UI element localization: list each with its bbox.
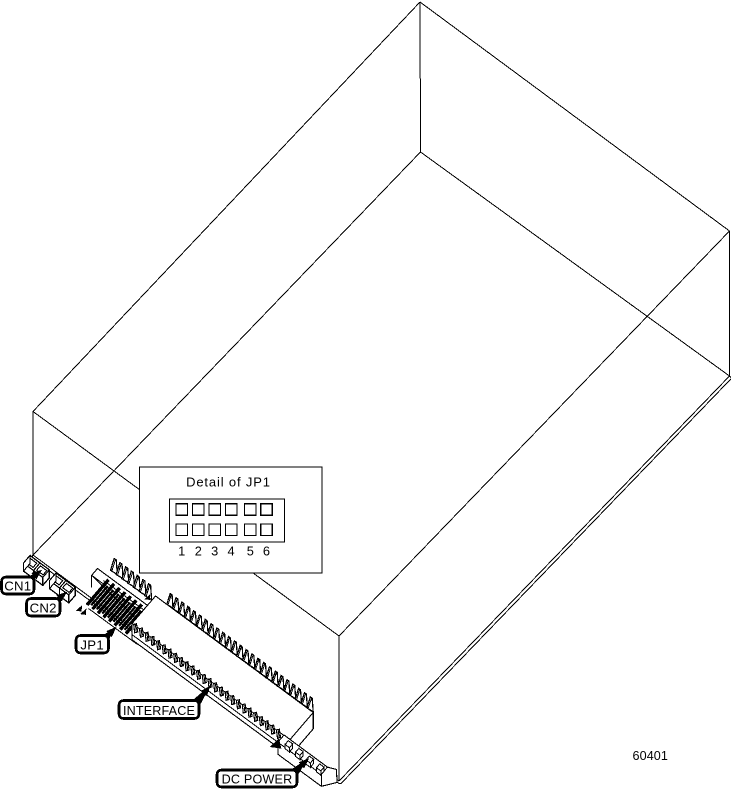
svg-text:1: 1 <box>178 544 185 559</box>
svg-text:6: 6 <box>263 544 270 559</box>
svg-text:CN1: CN1 <box>4 578 31 593</box>
svg-text:DC POWER: DC POWER <box>222 772 293 786</box>
svg-text:3: 3 <box>211 544 218 559</box>
svg-text:5: 5 <box>247 544 254 559</box>
svg-text:JP1: JP1 <box>80 637 104 652</box>
svg-text:Detail of JP1: Detail of JP1 <box>186 475 271 490</box>
svg-text:2: 2 <box>195 544 202 559</box>
svg-text:INTERFACE: INTERFACE <box>123 704 195 718</box>
svg-text:60401: 60401 <box>633 749 669 763</box>
svg-text:CN2: CN2 <box>30 600 57 615</box>
svg-text:4: 4 <box>228 544 235 559</box>
